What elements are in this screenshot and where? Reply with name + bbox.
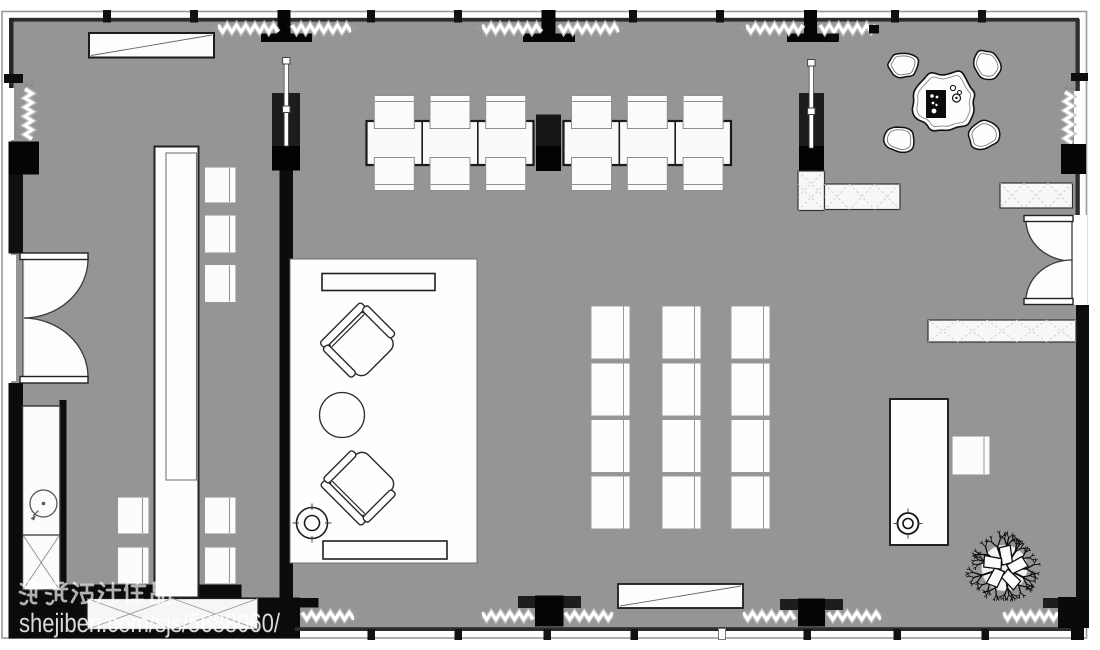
svg-text:shejiben.com/sjs/5688060/: shejiben.com/sjs/5688060/ bbox=[19, 608, 281, 638]
